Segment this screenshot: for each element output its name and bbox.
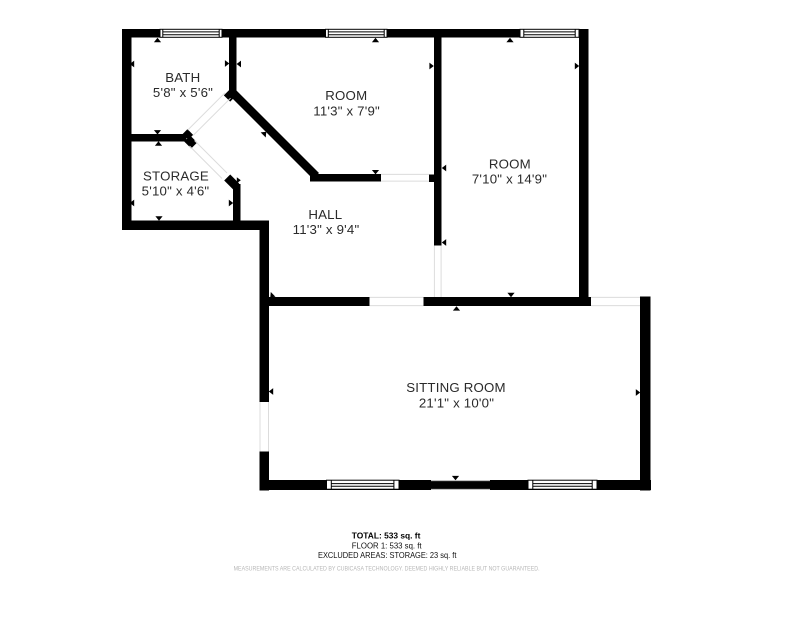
svg-text:BATH: BATH xyxy=(165,70,200,85)
svg-text:ROOM: ROOM xyxy=(489,157,531,172)
svg-text:5'8" x 5'6": 5'8" x 5'6" xyxy=(153,85,213,100)
svg-text:21'1" x 10'0": 21'1" x 10'0" xyxy=(419,396,494,411)
svg-text:11'3" x 9'4": 11'3" x 9'4" xyxy=(293,222,360,237)
svg-text:ROOM: ROOM xyxy=(325,88,367,103)
svg-text:SITTING ROOM: SITTING ROOM xyxy=(406,380,506,395)
svg-text:5'10" x 4'6": 5'10" x 4'6" xyxy=(142,184,210,199)
svg-text:TOTAL: 533 sq. ft: TOTAL: 533 sq. ft xyxy=(352,531,421,541)
svg-text:EXCLUDED AREAS: STORAGE: 23 sq: EXCLUDED AREAS: STORAGE: 23 sq. ft xyxy=(318,550,457,560)
svg-text:HALL: HALL xyxy=(308,207,342,222)
svg-text:11'3" x 7'9": 11'3" x 7'9" xyxy=(313,104,380,119)
svg-text:7'10" x 14'9": 7'10" x 14'9" xyxy=(472,172,547,187)
svg-text:STORAGE: STORAGE xyxy=(143,169,209,184)
svg-text:MEASUREMENTS ARE CALCULATED BY: MEASUREMENTS ARE CALCULATED BY CUBICASA … xyxy=(234,566,540,573)
svg-text:FLOOR 1: 533 sq. ft: FLOOR 1: 533 sq. ft xyxy=(352,540,422,550)
